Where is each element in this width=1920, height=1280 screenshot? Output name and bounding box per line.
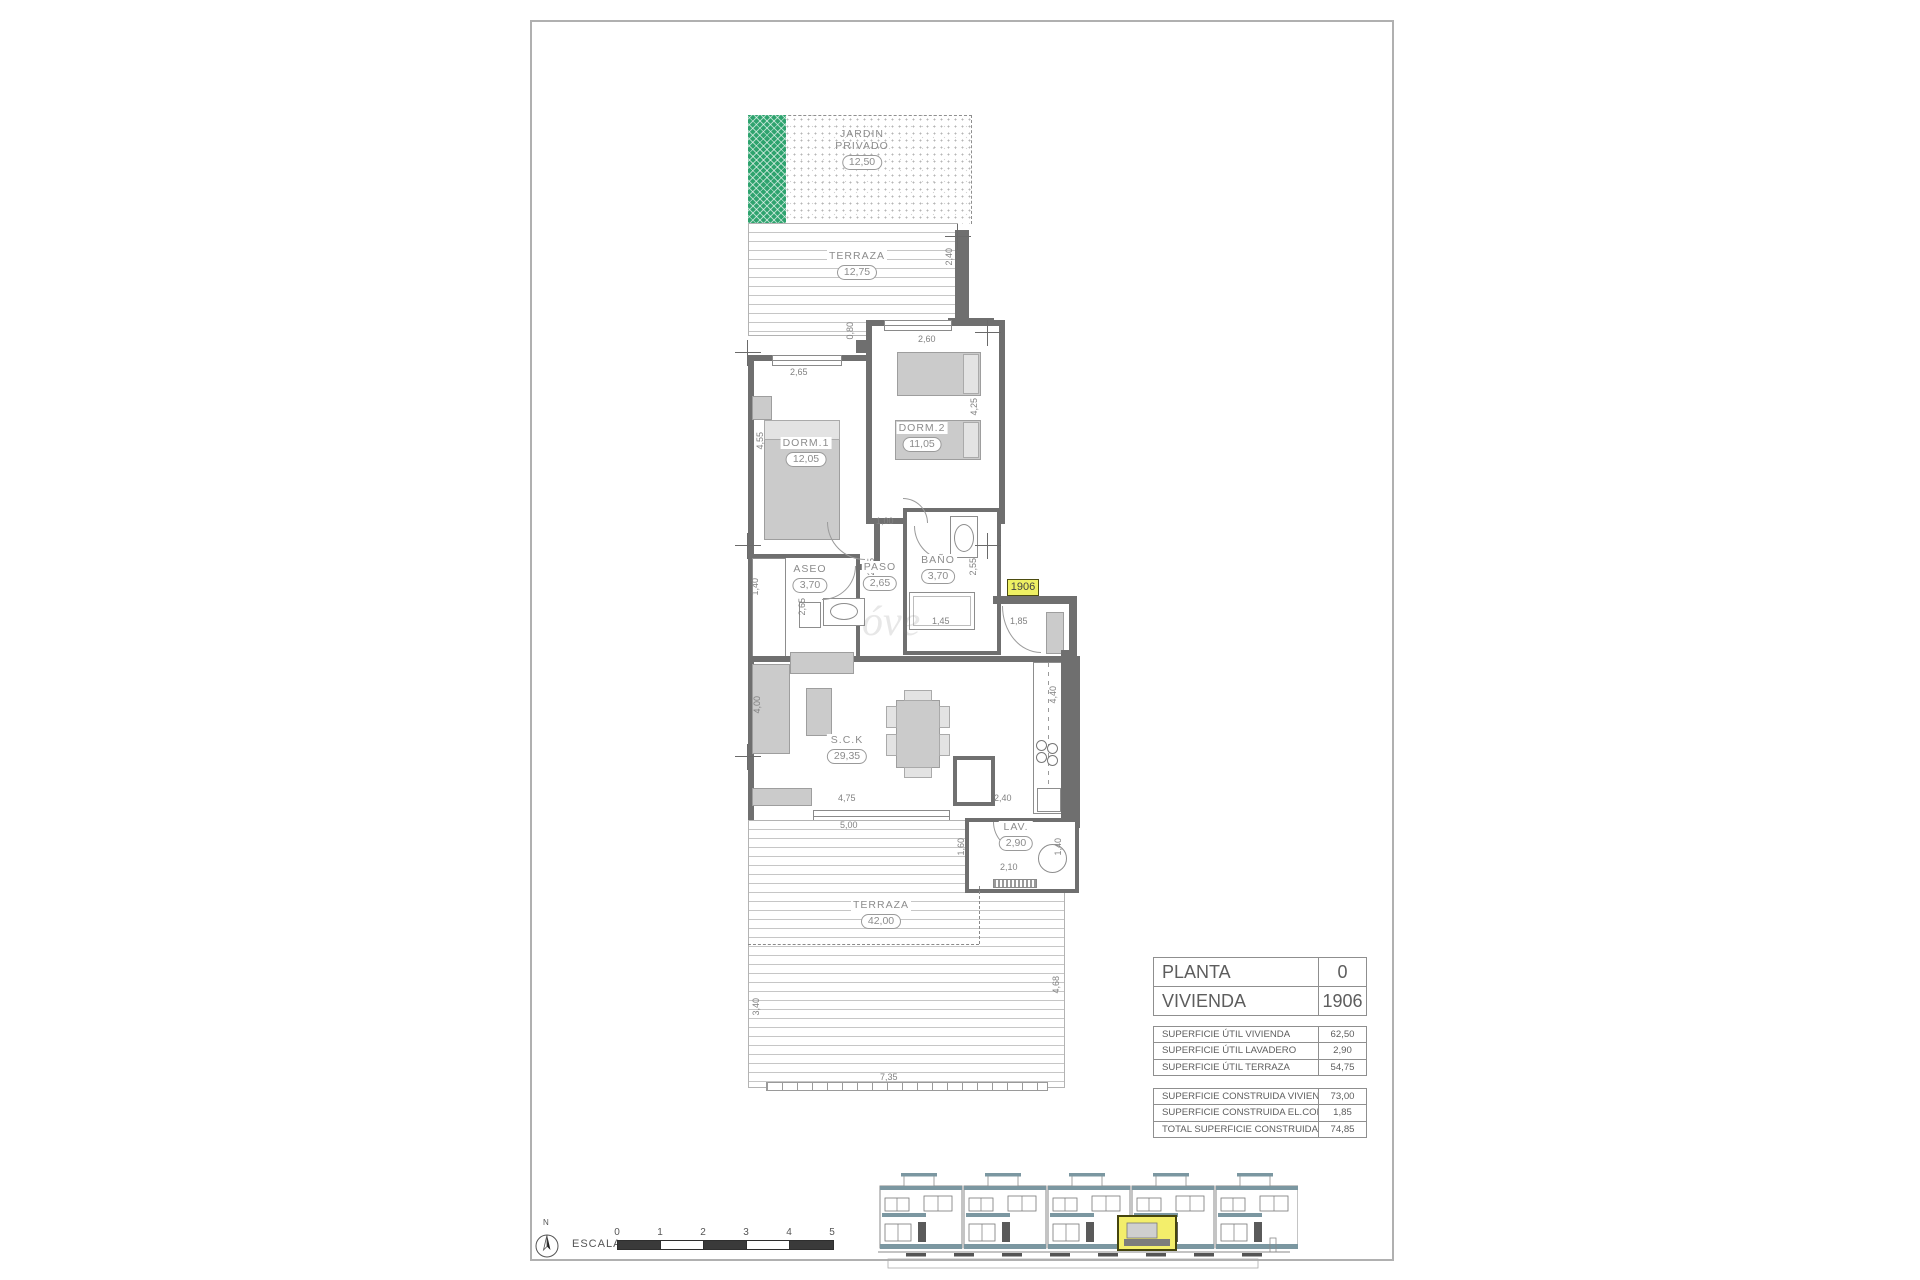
room-area: 12,75 (837, 265, 877, 280)
scale-tick: 2 (700, 1227, 706, 1238)
room-area: 2,65 (863, 576, 897, 591)
dim-sck-left: 4,00 (752, 696, 762, 714)
room-label-lav: LAV. 2,90 (999, 821, 1033, 851)
row-label: VIVIENDA (1154, 987, 1318, 1015)
dim-terraza-b-width: 7,35 (880, 1072, 898, 1082)
dim-kitchen: 4,40 (1048, 686, 1058, 704)
room-name: S.C.K (827, 734, 867, 746)
north-label: N (543, 1218, 549, 1227)
scale-bar-segment (660, 1240, 705, 1250)
sink-basin (954, 524, 974, 552)
chair (886, 706, 897, 728)
dim-dorm2-top: 2,60 (918, 334, 936, 344)
scale-tick: 3 (743, 1227, 749, 1238)
room-label-sck: S.C.K 29,35 (827, 734, 867, 764)
room-area: 3,70 (793, 578, 827, 593)
dim-terraza-right: 2,40 (944, 248, 954, 266)
wall-kitchen-right (1061, 650, 1074, 820)
dim-lav-right: 1,40 (1053, 838, 1063, 856)
dim-terraza-b-right: 4,68 (1051, 976, 1061, 994)
registration-mark (945, 224, 971, 250)
watermark: óve (862, 598, 920, 646)
wall-entry-top (993, 596, 1077, 604)
bed-pillow (963, 354, 979, 394)
room-name: BAÑO (919, 554, 957, 566)
overhang-dashed-line (979, 886, 980, 944)
row-label: SUPERFICIE CONSTRUIDA VIVIENDA (1154, 1089, 1318, 1104)
chair (886, 734, 897, 756)
room-name: DORM.1 (781, 437, 832, 449)
room-area: 11,05 (902, 437, 942, 452)
dim-bano-bottom: 1,45 (932, 616, 950, 626)
unit-number-badge: 1906 (1007, 579, 1039, 596)
room-name: DORM.2 (897, 422, 948, 434)
room-name: PASO (862, 561, 898, 573)
row-label: TOTAL SUPERFICIE CONSTRUIDA (1154, 1122, 1318, 1137)
table-row: SUPERFICIE ÚTIL TERRAZA 54,75 (1154, 1059, 1366, 1075)
dim-step: 0,80 (845, 322, 855, 340)
table-row: SUPERFICIE ÚTIL VIVIENDA 62,50 (1154, 1027, 1366, 1042)
bed-pillow (963, 422, 979, 458)
room-label-dorm1: DORM.1 12,05 (781, 437, 832, 467)
room-label-terraza-top: TERRAZA 12,75 (827, 250, 887, 280)
row-value: 1906 (1318, 987, 1366, 1015)
scale-bar-segment (789, 1240, 834, 1250)
room-name: TERRAZA (827, 250, 887, 262)
room-label-paso: PASO 2,65 (862, 561, 898, 591)
room-area: 3,70 (921, 569, 955, 584)
row-label: SUPERFICIE ÚTIL VIVIENDA (1154, 1027, 1318, 1042)
scale-tick: 0 (614, 1227, 620, 1238)
table-row: SUPERFICIE CONSTRUIDA VIVIENDA 73,00 (1154, 1089, 1366, 1104)
registration-mark (975, 533, 1001, 559)
sink-basin (830, 603, 858, 620)
chair (904, 767, 932, 778)
registration-mark (735, 533, 761, 559)
registration-mark (975, 320, 1001, 346)
row-label: PLANTA (1154, 958, 1318, 986)
table-row: VIVIENDA 1906 (1154, 986, 1366, 1015)
dim-terraza-b-left: 3,40 (751, 998, 761, 1016)
scale-bar-segment (617, 1240, 662, 1250)
lav-vent (993, 879, 1037, 888)
dim-dorm1-top: 2,65 (790, 367, 808, 377)
dim-bano-right: 2,55 (968, 558, 978, 576)
room-label-aseo: ASEO 3,70 (791, 563, 828, 593)
chair (904, 690, 932, 701)
table-row: PLANTA 0 (1154, 958, 1366, 986)
room-label-garden: JARDIN PRIVADO 12,50 (833, 128, 890, 170)
titleblock-main-table: PLANTA 0 VIVIENDA 1906 (1153, 957, 1367, 1016)
scale-bar-segment (746, 1240, 791, 1250)
water-heater (1046, 612, 1064, 654)
scale-tick: 4 (786, 1227, 792, 1238)
nightstand (752, 396, 772, 420)
dim-dorm1-left: 4,55 (755, 432, 765, 450)
building-elevation (878, 1172, 1298, 1270)
shaft-column (953, 756, 995, 806)
registration-mark (735, 744, 761, 770)
room-label-dorm2: DORM.2 11,05 (897, 422, 948, 452)
row-value: 73,00 (1318, 1089, 1366, 1104)
dim-lav-left: 1,60 (956, 838, 966, 856)
row-value: 0 (1318, 958, 1366, 986)
dining-table (896, 700, 940, 768)
row-label: SUPERFICIE CONSTRUIDA EL.COMUNES (1154, 1105, 1318, 1120)
room-name: ASEO (791, 563, 828, 575)
room-name: JARDIN (833, 128, 890, 140)
table-row: SUPERFICIE ÚTIL LAVADERO 2,90 (1154, 1042, 1366, 1058)
hob-burner (1036, 740, 1047, 751)
page: JARDIN PRIVADO 12,50 TERRAZA 12,75 2,40 … (0, 0, 1920, 1280)
dim-dorm2-right: 4,25 (969, 398, 979, 416)
coffee-table (806, 688, 832, 736)
hob-burner (1047, 755, 1058, 766)
north-compass-icon (532, 1222, 564, 1262)
dim-hall: 1,00 (876, 516, 894, 526)
chair (939, 706, 950, 728)
row-value: 62,50 (1318, 1027, 1366, 1042)
window-dorm1 (772, 355, 842, 366)
shower-tray (752, 558, 786, 658)
scale-tick: 5 (829, 1227, 835, 1238)
table-row: TOTAL SUPERFICIE CONSTRUIDA 74,85 (1154, 1121, 1366, 1137)
room-area: 29,35 (827, 749, 867, 764)
room-label-terraza-bottom: TERRAZA 42,00 (851, 899, 911, 929)
room-label-bano: BAÑO 3,70 (919, 554, 957, 584)
row-label: SUPERFICIE ÚTIL TERRAZA (1154, 1060, 1318, 1075)
dim-aseo-left: 1,40 (750, 578, 760, 596)
tv-bench (752, 788, 812, 806)
dim-sck-width: 4,75 (838, 793, 856, 803)
dim-entry: 1,85 (1010, 616, 1028, 626)
dim-terraza-width: 5,00 (840, 820, 858, 830)
table-row: SUPERFICIE CONSTRUIDA EL.COMUNES 1,85 (1154, 1104, 1366, 1120)
room-name: PRIVADO (833, 140, 890, 152)
dim-sck-right: 2,40 (994, 793, 1012, 803)
dim-lav-bottom: 2,10 (1000, 862, 1018, 872)
titleblock-construida-table: SUPERFICIE CONSTRUIDA VIVIENDA 73,00 SUP… (1153, 1088, 1367, 1138)
garden-hedge (748, 115, 786, 223)
room-area: 12,05 (786, 452, 826, 467)
overhang-dashed-line (748, 944, 979, 945)
sofa-horizontal (790, 652, 854, 674)
room-area: 42,00 (861, 914, 901, 929)
dim-aseo-bottom: 2,65 (797, 598, 807, 616)
titleblock-util-table: SUPERFICIE ÚTIL VIVIENDA 62,50 SUPERFICI… (1153, 1026, 1367, 1076)
registration-mark (735, 340, 761, 366)
hob-burner (1036, 752, 1047, 763)
kitchen-sink (1037, 788, 1061, 812)
room-area: 2,90 (999, 836, 1033, 851)
room-name: TERRAZA (851, 899, 911, 911)
row-value: 74,85 (1318, 1122, 1366, 1137)
row-label: SUPERFICIE ÚTIL LAVADERO (1154, 1043, 1318, 1058)
scale-tick: 1 (657, 1227, 663, 1238)
chair (939, 734, 950, 756)
row-value: 54,75 (1318, 1060, 1366, 1075)
row-value: 1,85 (1318, 1105, 1366, 1120)
row-value: 2,90 (1318, 1043, 1366, 1058)
window-dorm2 (884, 320, 952, 331)
hob-burner (1047, 743, 1058, 754)
room-area: 12,50 (842, 155, 882, 170)
terrace-railing (766, 1082, 1048, 1091)
scale-bar-segment (703, 1240, 748, 1250)
room-name: LAV. (999, 821, 1033, 833)
